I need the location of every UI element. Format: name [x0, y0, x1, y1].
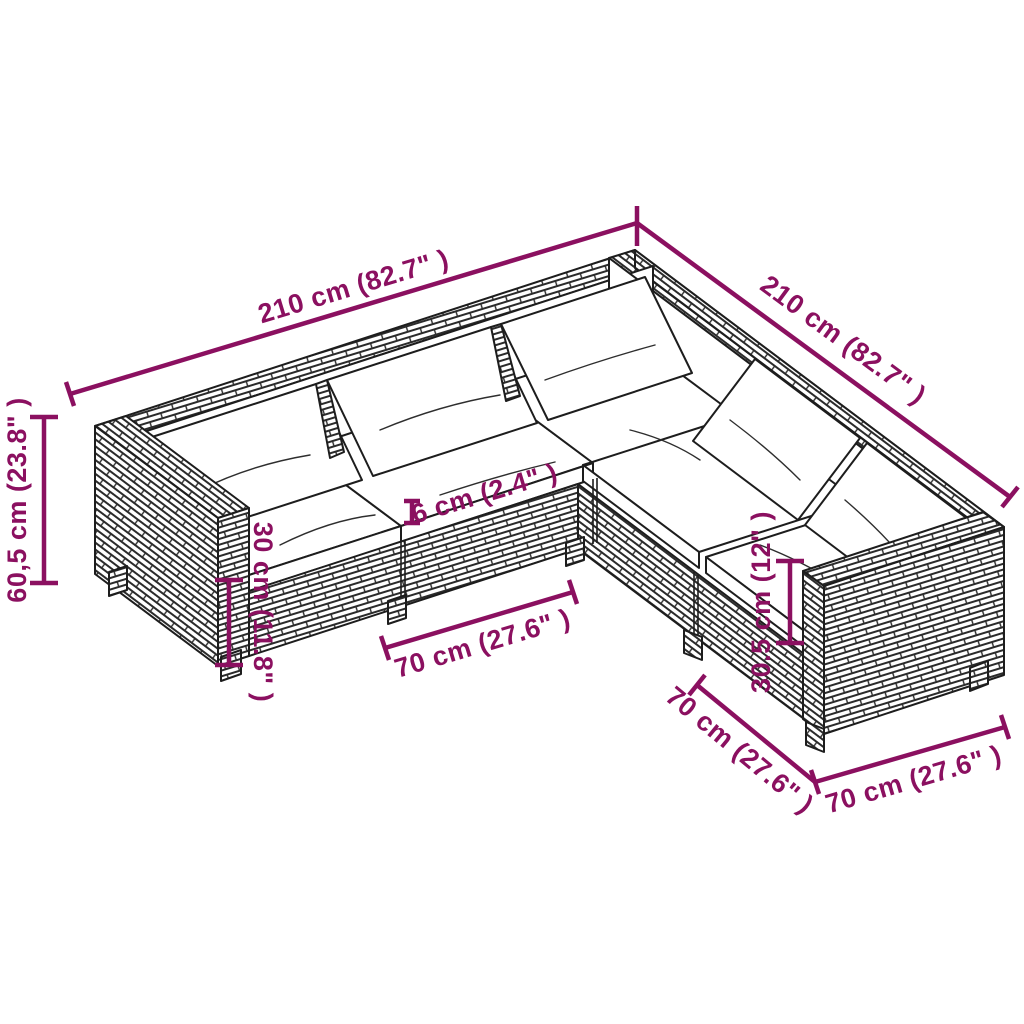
left-armrest-front — [218, 508, 249, 666]
right-armrest-side — [803, 571, 824, 734]
dim-line-overall-height — [30, 417, 58, 583]
dim-label-back-height: 30.5 cm (12" ) — [746, 511, 776, 693]
sofa-foot — [388, 595, 406, 624]
dim-label-overall-height: 60,5 cm (23.8" ) — [2, 397, 32, 602]
sofa-foot — [109, 566, 127, 596]
sofa-dimension-diagram: 210 cm (82.7" ) 210 cm (82.7" ) 60,5 cm … — [0, 0, 1024, 1024]
dim-label-seat-height: 30 cm (11.8" ) — [248, 522, 278, 702]
sofa-foot — [566, 537, 584, 566]
dim-label-module-width-front: 70 cm (27.6" ) — [391, 603, 574, 684]
sofa-illustration — [95, 250, 1004, 752]
diagram-canvas: 210 cm (82.7" ) 210 cm (82.7" ) 60,5 cm … — [0, 0, 1024, 1024]
